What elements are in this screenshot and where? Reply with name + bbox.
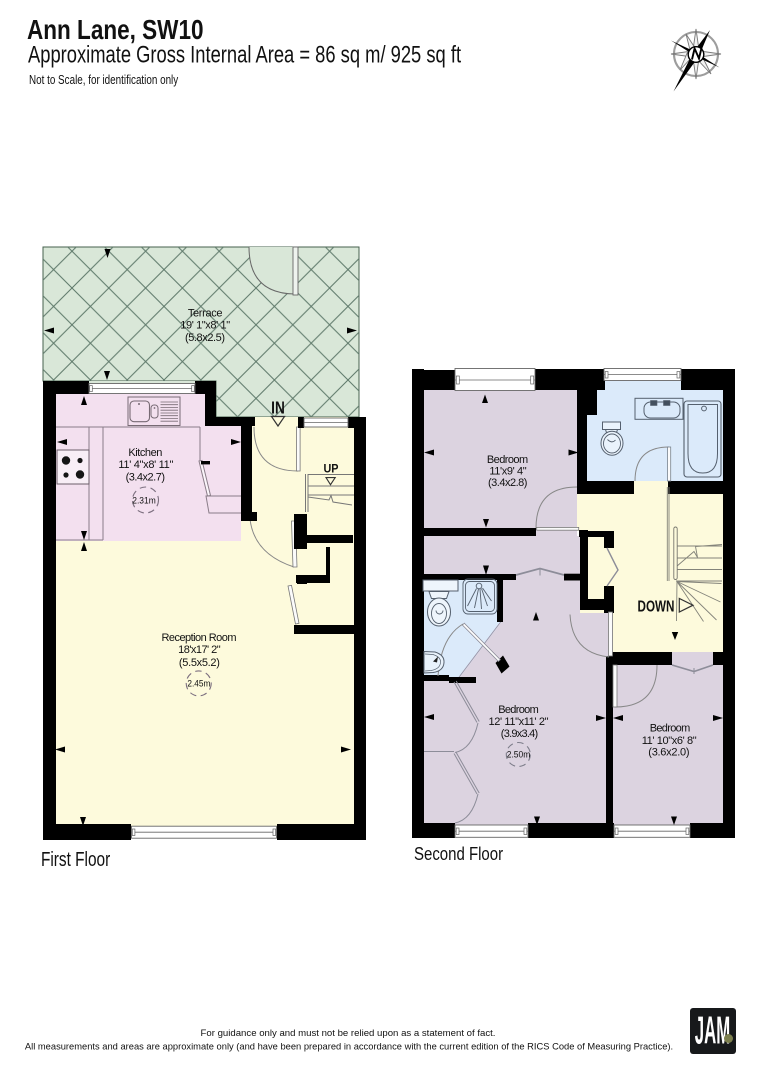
svg-text:All measurements and areas are: All measurements and areas are approxima… <box>25 1042 673 1052</box>
svg-text:Kitchen: Kitchen <box>128 447 162 459</box>
svg-text:Not to Scale, for identificati: Not to Scale, for identification only <box>29 74 178 88</box>
svg-text:Bedroom: Bedroom <box>650 723 691 735</box>
svg-text:JAM: JAM <box>695 1010 730 1053</box>
svg-text:IN: IN <box>271 399 285 418</box>
svg-text:19' 1"x8' 1": 19' 1"x8' 1" <box>180 320 230 332</box>
svg-text:11' 4"x8' 11": 11' 4"x8' 11" <box>118 459 173 471</box>
svg-text:11' 10"x6' 8": 11' 10"x6' 8" <box>642 735 697 747</box>
svg-text:11'x9' 4": 11'x9' 4" <box>489 466 526 478</box>
svg-text:Second Floor: Second Floor <box>414 844 503 865</box>
svg-text:2.45m: 2.45m <box>187 679 210 689</box>
svg-text:2.50m: 2.50m <box>507 750 531 760</box>
svg-text:Bedroom: Bedroom <box>498 704 539 716</box>
svg-text:For guidance only and must not: For guidance only and must not be relied… <box>201 1028 496 1039</box>
svg-text:(3.4x2.7): (3.4x2.7) <box>126 472 165 484</box>
svg-text:Bedroom: Bedroom <box>487 454 528 466</box>
svg-text:(3.4x2.8): (3.4x2.8) <box>488 477 528 489</box>
svg-text:Approximate Gross Internal Are: Approximate Gross Internal Area = 86 sq … <box>28 41 461 68</box>
svg-text:(3.6x2.0): (3.6x2.0) <box>648 747 689 759</box>
svg-text:12' 11"x11' 2": 12' 11"x11' 2" <box>489 716 549 728</box>
svg-text:Reception Room: Reception Room <box>162 632 237 644</box>
svg-text:DOWN: DOWN <box>638 597 675 615</box>
svg-text:First Floor: First Floor <box>41 848 110 870</box>
svg-text:UP: UP <box>323 463 338 476</box>
svg-text:(5.5x5.2): (5.5x5.2) <box>179 657 220 669</box>
svg-text:2.31m: 2.31m <box>132 496 156 506</box>
svg-text:18'x17' 2": 18'x17' 2" <box>178 644 221 656</box>
svg-text:(5.8x2.5): (5.8x2.5) <box>185 332 225 344</box>
svg-text:(3.9x3.4): (3.9x3.4) <box>501 728 538 740</box>
svg-text:Terrace: Terrace <box>188 308 223 320</box>
